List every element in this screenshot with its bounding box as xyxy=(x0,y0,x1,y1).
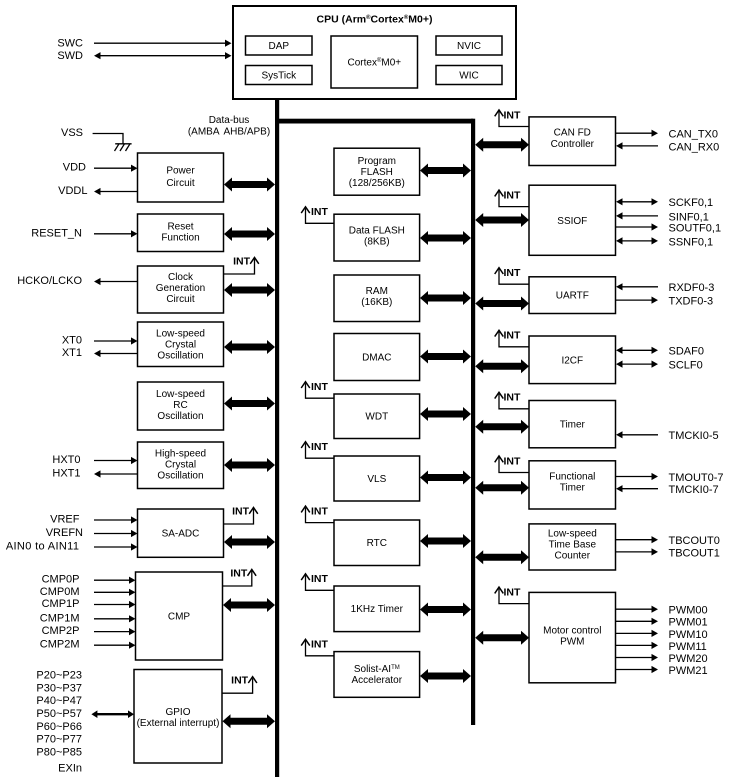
svg-text:WDT: WDT xyxy=(365,412,388,423)
svg-text:TMCKI0-5: TMCKI0-5 xyxy=(669,430,719,442)
svg-text:HXT1: HXT1 xyxy=(52,468,80,480)
svg-text:P30~P37: P30~P37 xyxy=(36,682,82,694)
svg-text:(AMBA AHB/APB): (AMBA AHB/APB) xyxy=(188,127,270,138)
svg-text:SSIOF: SSIOF xyxy=(557,216,587,227)
svg-text:P60~P66: P60~P66 xyxy=(36,721,82,733)
svg-text:High-speed: High-speed xyxy=(155,448,206,459)
svg-text:Crystal: Crystal xyxy=(165,339,196,350)
svg-text:INT: INT xyxy=(232,506,250,518)
svg-text:INT: INT xyxy=(233,256,251,268)
svg-text:P40~P47: P40~P47 xyxy=(36,695,82,707)
svg-text:RTC: RTC xyxy=(367,538,387,549)
svg-text:Circuit: Circuit xyxy=(166,294,195,305)
svg-text:Timer: Timer xyxy=(560,483,586,494)
svg-text:Reset: Reset xyxy=(167,221,193,232)
svg-text:Function: Function xyxy=(161,232,199,243)
svg-text:CPU (Arm®Cortex®M0+): CPU (Arm®Cortex®M0+) xyxy=(317,13,433,25)
svg-text:INT: INT xyxy=(311,573,329,585)
svg-text:Timer: Timer xyxy=(560,420,586,431)
svg-text:Low-speed: Low-speed xyxy=(548,528,597,539)
svg-text:SSNF0,1: SSNF0,1 xyxy=(669,236,714,248)
svg-text:SysTick: SysTick xyxy=(261,71,297,82)
svg-text:CMP0P: CMP0P xyxy=(42,574,80,586)
svg-text:VSS: VSS xyxy=(61,127,83,139)
svg-text:Crystal: Crystal xyxy=(165,459,196,470)
svg-text:Low-speed: Low-speed xyxy=(156,389,205,400)
svg-text:INT: INT xyxy=(504,267,522,279)
svg-text:P20~P23: P20~P23 xyxy=(36,669,82,681)
svg-text:VDDL: VDDL xyxy=(58,185,87,197)
svg-text:CMP2M: CMP2M xyxy=(40,639,80,651)
svg-text:Cortex®M0+: Cortex®M0+ xyxy=(347,57,401,68)
svg-text:HXT0: HXT0 xyxy=(52,454,80,466)
svg-text:Functional: Functional xyxy=(549,471,595,482)
svg-text:SWD: SWD xyxy=(57,50,83,62)
svg-text:INT: INT xyxy=(311,505,329,517)
svg-text:(128/256KB): (128/256KB) xyxy=(349,178,405,189)
svg-text:SA-ADC: SA-ADC xyxy=(162,529,200,540)
svg-text:INT: INT xyxy=(311,381,329,393)
svg-text:VREFN: VREFN xyxy=(46,527,83,539)
svg-text:P70~P77: P70~P77 xyxy=(36,734,82,746)
svg-text:P50~P57: P50~P57 xyxy=(36,708,82,720)
svg-text:Counter: Counter xyxy=(555,551,591,562)
svg-text:CMP1M: CMP1M xyxy=(40,612,80,624)
svg-text:WIC: WIC xyxy=(459,71,478,82)
svg-text:TMOUT0-7: TMOUT0-7 xyxy=(669,472,724,484)
svg-text:CMP2P: CMP2P xyxy=(42,625,80,637)
svg-text:VREF: VREF xyxy=(50,514,80,526)
svg-text:(8KB): (8KB) xyxy=(364,237,390,248)
svg-text:Data-bus: Data-bus xyxy=(209,115,250,126)
svg-text:INT: INT xyxy=(230,568,248,580)
svg-text:SDAF0: SDAF0 xyxy=(669,346,704,358)
svg-text:PWM20: PWM20 xyxy=(669,653,708,665)
svg-text:(16KB): (16KB) xyxy=(361,297,392,308)
svg-text:DAP: DAP xyxy=(269,41,290,52)
svg-text:P80~P85: P80~P85 xyxy=(36,747,82,759)
svg-text:INT: INT xyxy=(504,392,522,404)
svg-text:RC: RC xyxy=(173,400,187,411)
svg-text:Time Base: Time Base xyxy=(549,539,597,550)
svg-text:DMAC: DMAC xyxy=(362,352,391,363)
svg-text:CMP: CMP xyxy=(168,612,191,623)
svg-text:VDD: VDD xyxy=(63,162,86,174)
svg-text:I2CF: I2CF xyxy=(561,355,583,366)
svg-text:Controller: Controller xyxy=(551,139,595,150)
svg-text:SWC: SWC xyxy=(57,38,83,50)
svg-text:CMP1P: CMP1P xyxy=(42,598,80,610)
svg-text:INT: INT xyxy=(504,189,522,201)
svg-text:UARTF: UARTF xyxy=(556,291,589,302)
svg-text:INT: INT xyxy=(311,639,329,651)
svg-text:EXIn: EXIn xyxy=(58,762,82,774)
svg-text:INT: INT xyxy=(504,330,522,342)
svg-text:SCKF0,1: SCKF0,1 xyxy=(669,197,714,209)
svg-text:Power: Power xyxy=(166,166,195,177)
svg-text:XT0: XT0 xyxy=(62,335,82,347)
svg-text:GPIO: GPIO xyxy=(165,707,190,718)
svg-text:INT: INT xyxy=(311,441,329,453)
svg-text:INT: INT xyxy=(311,206,329,218)
svg-text:Motor control: Motor control xyxy=(543,626,601,637)
svg-text:1KHz Timer: 1KHz Timer xyxy=(351,604,404,615)
svg-text:FLASH: FLASH xyxy=(361,167,393,178)
svg-text:PWM21: PWM21 xyxy=(669,665,708,677)
svg-text:PWM01: PWM01 xyxy=(669,617,708,629)
svg-text:CAN FD: CAN FD xyxy=(554,128,591,139)
svg-text:VLS: VLS xyxy=(367,474,386,485)
svg-text:(External interrupt): (External interrupt) xyxy=(137,718,220,729)
svg-text:PWM11: PWM11 xyxy=(669,641,707,653)
svg-text:CAN_TX0: CAN_TX0 xyxy=(669,129,719,141)
svg-text:PWM10: PWM10 xyxy=(669,629,708,641)
svg-text:XT1: XT1 xyxy=(62,347,82,359)
svg-text:Data FLASH: Data FLASH xyxy=(349,226,405,237)
svg-text:Circuit: Circuit xyxy=(166,178,195,189)
svg-text:INT: INT xyxy=(504,586,522,598)
svg-text:SOUTF0,1: SOUTF0,1 xyxy=(669,222,722,234)
svg-text:Clock: Clock xyxy=(168,272,194,283)
svg-text:TMCKI0-7: TMCKI0-7 xyxy=(669,484,719,496)
svg-text:HCKO/LCKO: HCKO/LCKO xyxy=(17,275,82,287)
svg-text:Generation: Generation xyxy=(156,283,205,294)
svg-text:INT: INT xyxy=(504,109,522,121)
svg-text:RAM: RAM xyxy=(366,286,388,297)
svg-text:Oscillation: Oscillation xyxy=(157,471,203,482)
svg-text:TXDF0-3: TXDF0-3 xyxy=(669,296,714,308)
svg-text:SCLF0: SCLF0 xyxy=(669,360,703,372)
svg-text:INT: INT xyxy=(231,675,249,687)
svg-text:CAN_RX0: CAN_RX0 xyxy=(669,141,720,153)
svg-text:Oscillation: Oscillation xyxy=(157,411,203,422)
svg-text:Low-speed: Low-speed xyxy=(156,328,205,339)
svg-text:PWM: PWM xyxy=(560,637,584,648)
svg-text:RESET_N: RESET_N xyxy=(31,227,82,239)
svg-text:CMP0M: CMP0M xyxy=(40,586,80,598)
svg-text:AIN0 to AIN11: AIN0 to AIN11 xyxy=(6,541,79,553)
svg-text:INT: INT xyxy=(504,455,522,467)
svg-text:NVIC: NVIC xyxy=(457,41,481,52)
svg-text:Accelerator: Accelerator xyxy=(352,675,403,686)
svg-text:PWM00: PWM00 xyxy=(669,605,708,617)
svg-text:TBCOUT0: TBCOUT0 xyxy=(669,535,720,547)
svg-text:RXDF0-3: RXDF0-3 xyxy=(669,282,715,294)
svg-text:TBCOUT1: TBCOUT1 xyxy=(669,547,720,559)
svg-text:Oscillation: Oscillation xyxy=(157,351,203,362)
svg-text:Program: Program xyxy=(358,156,396,167)
